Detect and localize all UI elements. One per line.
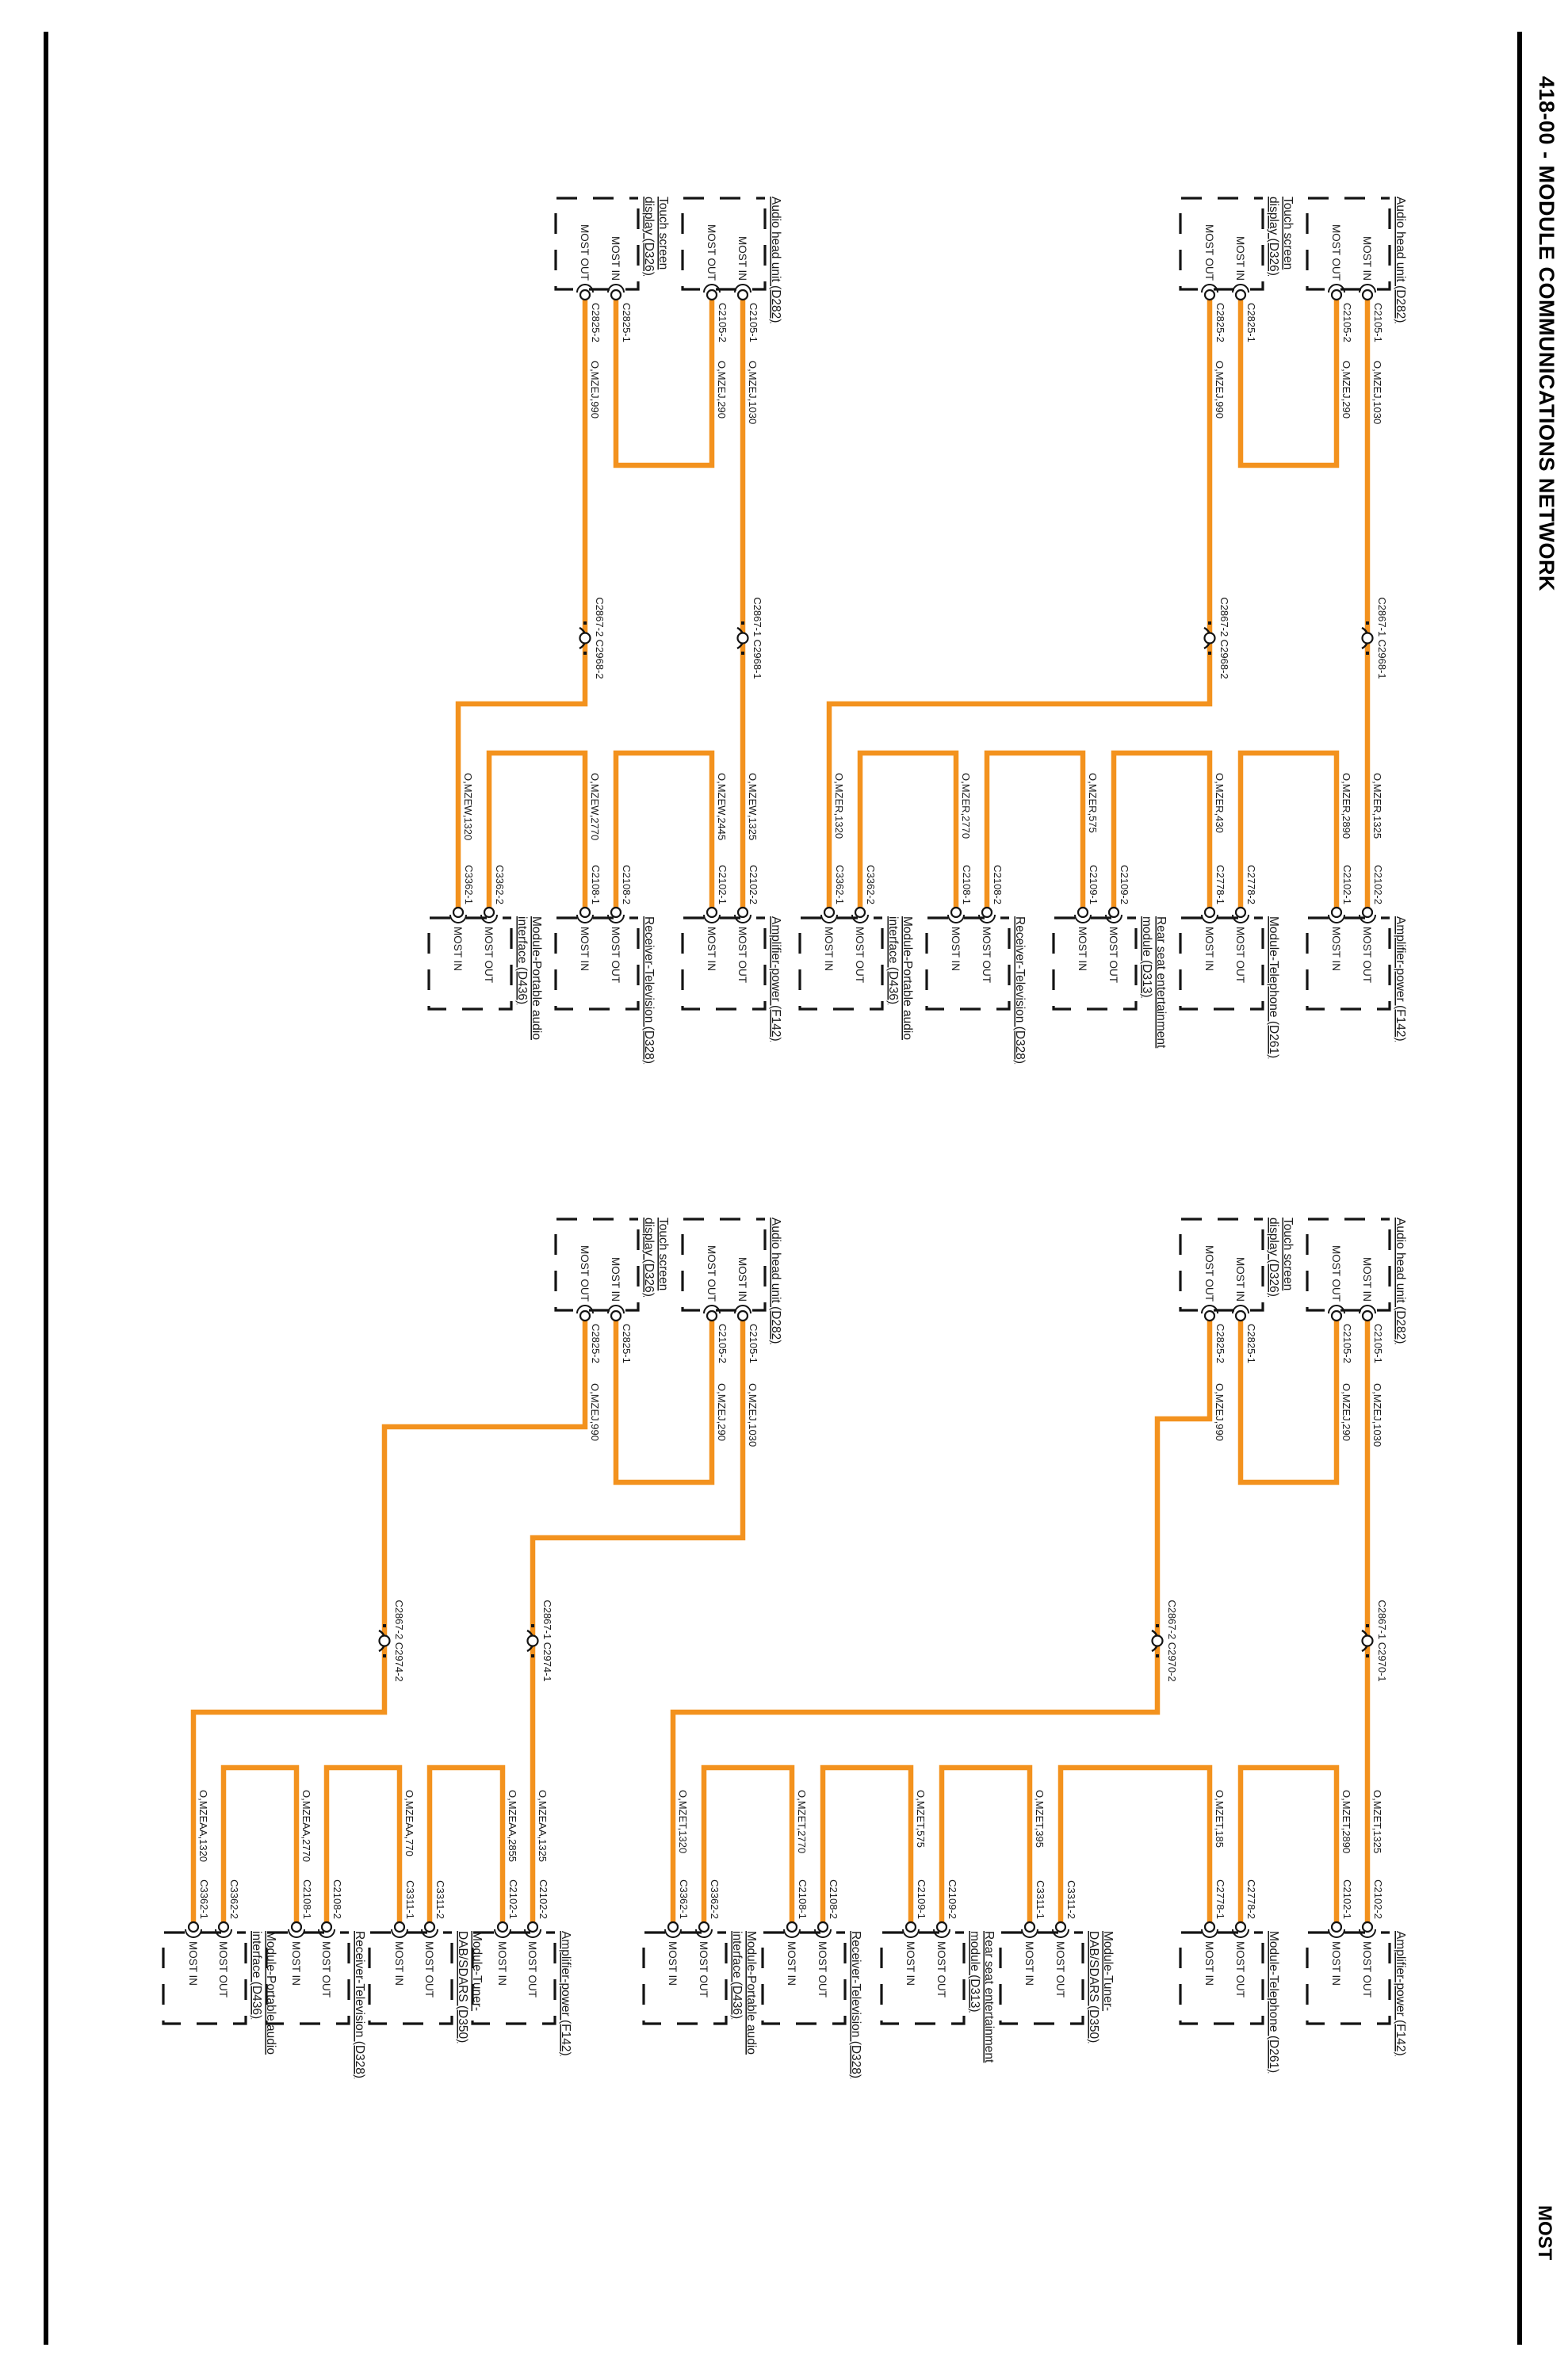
module-box bbox=[1180, 198, 1263, 289]
module-title: display (D326) bbox=[1267, 1218, 1280, 1297]
circuit-label: O,MZEJ,1030 bbox=[747, 1383, 759, 1447]
connector-pin-icon bbox=[824, 908, 834, 917]
connector-pin-icon bbox=[1078, 908, 1088, 917]
connector-label: C2108-2 bbox=[621, 865, 633, 904]
circuit-label: O,MZER,430 bbox=[1214, 773, 1226, 833]
pin-direction-label: MOST OUT bbox=[217, 1941, 229, 1998]
pin-direction-label: MOST OUT bbox=[483, 927, 495, 983]
module-title: Rear seat entertainment bbox=[982, 1931, 996, 2063]
connector-label: C2105-1 bbox=[748, 303, 759, 342]
module-box bbox=[683, 198, 765, 289]
connector-label: C2102-2 bbox=[1372, 1879, 1384, 1919]
connector-label: C3311-2 bbox=[434, 1880, 446, 1919]
pin-direction-label: MOST OUT bbox=[736, 927, 748, 983]
pin-direction-label: MOST IN bbox=[1234, 1257, 1246, 1302]
connector-pin-icon bbox=[1205, 1922, 1214, 1932]
module-touch-screen-display-d326: Touch screendisplay (D326)C2825-1MOST IN… bbox=[556, 1218, 670, 1363]
module-title: Receiver-Television (D328) bbox=[353, 1931, 366, 2078]
pin-direction-label: MOST OUT bbox=[1361, 927, 1373, 983]
pin-direction-label: MOST IN bbox=[823, 927, 835, 971]
pin-direction-label: MOST IN bbox=[1077, 927, 1088, 971]
connector-label: C2105-1 bbox=[748, 1324, 759, 1363]
connector-label: C2825-2 bbox=[590, 303, 602, 342]
connector-label: C2778-2 bbox=[1245, 865, 1257, 904]
connector-pin-icon bbox=[580, 290, 590, 300]
pin-direction-label: MOST OUT bbox=[1203, 224, 1215, 281]
connector-label: C2825-1 bbox=[1245, 1324, 1257, 1363]
module-title: interface (D436) bbox=[886, 916, 900, 1004]
connector-label: C3362-1 bbox=[198, 1879, 210, 1919]
pin-direction-label: MOST IN bbox=[1361, 1257, 1373, 1302]
module-title: Module-Portable audio bbox=[530, 916, 543, 1040]
connector-pin-icon bbox=[951, 908, 961, 917]
connector-pin-icon bbox=[699, 1922, 709, 1932]
pin-direction-label: MOST IN bbox=[786, 1941, 797, 1986]
module-box bbox=[1307, 918, 1390, 1009]
module-module-portable-audio-interface-d436: Module-Portable audiointerface (D436)C33… bbox=[644, 1879, 758, 2055]
module-title: Touch screen bbox=[656, 1218, 670, 1290]
connector-label: C2102-2 bbox=[748, 865, 759, 904]
pin-direction-label: MOST IN bbox=[290, 1941, 302, 1986]
connector-pin-icon bbox=[982, 908, 992, 917]
connector-pin-icon bbox=[219, 1922, 228, 1932]
module-touch-screen-display-d326: Touch screendisplay (D326)C2825-1MOST IN… bbox=[1180, 197, 1295, 342]
inline-connector-label: C2867-1 C2968-1 bbox=[751, 597, 763, 679]
inline-connector-label: C2867-1 C2974-1 bbox=[541, 1600, 553, 1681]
pin-direction-label: MOST OUT bbox=[854, 927, 866, 983]
connector-pin-icon bbox=[1363, 1922, 1372, 1932]
pin-direction-label: MOST IN bbox=[1203, 1941, 1215, 1986]
connector-pin-icon bbox=[1236, 908, 1245, 917]
circuit-label: O,MZER,1320 bbox=[833, 773, 845, 839]
connector-label: C2825-2 bbox=[590, 1324, 602, 1363]
pin-direction-label: MOST IN bbox=[1330, 927, 1342, 971]
network-4: O,MZEJ,1030O,MZEAA,1325O,MZEJ,290O,MZEJ,… bbox=[163, 1218, 782, 2078]
module-title: Module-Portable audio bbox=[264, 1931, 277, 2055]
connector-label: C3311-1 bbox=[404, 1880, 416, 1919]
pin-direction-label: MOST OUT bbox=[579, 224, 591, 281]
connector-label: C3362-1 bbox=[834, 865, 846, 904]
connector-label: C3362-2 bbox=[228, 1879, 240, 1919]
module-touch-screen-display-d326: Touch screendisplay (D326)C2825-1MOST IN… bbox=[1180, 1218, 1295, 1363]
connector-pin-icon bbox=[425, 1922, 434, 1932]
connector-label: C2105-2 bbox=[717, 1324, 729, 1363]
module-module-portable-audio-interface-d436: Module-Portable audiointerface (D436)C33… bbox=[163, 1879, 277, 2055]
pin-direction-label: MOST OUT bbox=[981, 927, 992, 983]
inline-connector-label: C2867-1 C2970-1 bbox=[1376, 1600, 1388, 1681]
module-box bbox=[556, 198, 638, 289]
pin-direction-label: MOST IN bbox=[667, 1941, 679, 1986]
circuit-label: O,MZEJ,990 bbox=[589, 361, 601, 419]
module-receiver-television-d328: Receiver-Television (D328)C2108-2MOST OU… bbox=[266, 1879, 366, 2078]
module-box bbox=[683, 918, 765, 1009]
module-box bbox=[556, 1219, 638, 1310]
connector-pin-icon bbox=[322, 1922, 331, 1932]
connector-pin-icon bbox=[787, 1922, 797, 1932]
module-title: interface (D436) bbox=[515, 916, 529, 1004]
connector-label: C2109-2 bbox=[947, 1879, 958, 1919]
connector-pin-icon bbox=[1363, 908, 1372, 917]
pin-direction-label: MOST OUT bbox=[1054, 1941, 1066, 1998]
most-ring-wire bbox=[193, 1316, 585, 1926]
module-title: Receiver-Television (D328) bbox=[1013, 916, 1027, 1064]
connector-label: C2102-2 bbox=[1372, 865, 1384, 904]
module-rear-seat-entertainment-module-d313: Rear seat entertainmentmodule (D313)C210… bbox=[1054, 865, 1168, 1049]
module-box bbox=[163, 1933, 246, 2024]
pin-direction-label: MOST IN bbox=[187, 1941, 199, 1986]
pin-direction-label: MOST OUT bbox=[526, 1941, 538, 1998]
connector-pin-icon bbox=[707, 290, 717, 300]
connector-pin-icon bbox=[611, 290, 621, 300]
wiring-diagram-canvas: O,MZEJ,1030O,MZER,1325O,MZEJ,290O,MZEJ,9… bbox=[0, 0, 1568, 2378]
pin-direction-label: MOST IN bbox=[1203, 927, 1215, 971]
circuit-label: O,MZEJ,290 bbox=[716, 361, 728, 419]
module-audio-head-unit-d282: Audio head unit (D282)C2105-1MOST INC210… bbox=[1307, 197, 1407, 342]
module-amplifier-power-f142: Amplifier-power (F142)C2102-2MOST OUTC21… bbox=[1307, 1879, 1407, 2056]
connector-pin-icon bbox=[1332, 1311, 1341, 1321]
connector-label: C3362-1 bbox=[463, 865, 475, 904]
pin-direction-label: MOST IN bbox=[496, 1941, 508, 1986]
connector-label: C2108-2 bbox=[331, 1879, 343, 1919]
connector-pin-icon bbox=[453, 908, 463, 917]
most-ring-wire bbox=[458, 295, 585, 912]
connector-label: C2825-1 bbox=[1245, 303, 1257, 342]
connector-pin-icon bbox=[818, 1922, 828, 1932]
connector-pin-icon bbox=[1205, 290, 1214, 300]
connector-pin-icon bbox=[1236, 1311, 1245, 1321]
pin-direction-label: MOST OUT bbox=[1107, 927, 1119, 983]
pin-direction-label: MOST OUT bbox=[1234, 1941, 1246, 1998]
pin-direction-label: MOST OUT bbox=[706, 224, 717, 281]
circuit-label: O,MZER,2890 bbox=[1340, 773, 1352, 839]
pin-direction-label: MOST OUT bbox=[1330, 1245, 1342, 1302]
connector-pin-icon bbox=[1363, 290, 1372, 300]
module-title: interface (D436) bbox=[250, 1931, 263, 2019]
connector-pin-icon bbox=[668, 1922, 678, 1932]
module-rear-seat-entertainment-module-d313: Rear seat entertainmentmodule (D313)C210… bbox=[882, 1879, 996, 2063]
circuit-label: O,MZEAA,2855 bbox=[507, 1790, 518, 1862]
connector-pin-icon bbox=[395, 1922, 404, 1932]
module-title: Amplifier-power (F142) bbox=[769, 916, 782, 1042]
pin-direction-label: MOST OUT bbox=[579, 1245, 591, 1302]
connector-pin-icon bbox=[707, 1311, 717, 1321]
module-title: Amplifier-power (F142) bbox=[1394, 1931, 1407, 2056]
module-module-telephone-d261: Module-Telephone (D261)C2778-2MOST OUTC2… bbox=[1180, 1879, 1280, 2073]
module-title: Module-Portable audio bbox=[744, 1931, 758, 2055]
module-box bbox=[1180, 1219, 1263, 1310]
circuit-label: O,MZEJ,990 bbox=[1214, 1383, 1226, 1441]
circuit-label: O,MZEJ,290 bbox=[1340, 1383, 1352, 1441]
circuit-label: O,MZEW,1320 bbox=[462, 773, 474, 840]
module-box bbox=[556, 918, 638, 1009]
module-box bbox=[1307, 1933, 1390, 2024]
pin-direction-label: MOST OUT bbox=[1203, 1245, 1215, 1302]
pin-direction-label: MOST OUT bbox=[1234, 927, 1246, 983]
connector-pin-icon bbox=[498, 1922, 507, 1932]
module-box bbox=[266, 1933, 349, 2024]
pin-direction-label: MOST OUT bbox=[1330, 224, 1342, 281]
module-box bbox=[763, 1933, 845, 2024]
circuit-label: O,MZEJ,990 bbox=[589, 1383, 601, 1441]
connector-label: C3311-2 bbox=[1065, 1880, 1077, 1919]
module-title: Module-Tuner- bbox=[1101, 1931, 1115, 2011]
circuit-label: O,MZEJ,1030 bbox=[1371, 361, 1383, 424]
module-module-telephone-d261: Module-Telephone (D261)C2778-2MOST OUTC2… bbox=[1180, 865, 1280, 1058]
module-title: Module-Telephone (D261) bbox=[1267, 916, 1280, 1058]
module-box bbox=[472, 1933, 555, 2024]
module-title: Audio head unit (D282) bbox=[1394, 197, 1407, 323]
circuit-label: O,MZEW,2770 bbox=[589, 773, 601, 840]
module-title: Receiver-Television (D328) bbox=[849, 1931, 862, 2078]
pin-direction-label: MOST OUT bbox=[935, 1941, 947, 1998]
connector-label: C2825-2 bbox=[1214, 303, 1226, 342]
connector-label: C2825-2 bbox=[1214, 1324, 1226, 1363]
connector-label: C2105-1 bbox=[1372, 303, 1384, 342]
circuit-label: O,MZER,2770 bbox=[960, 773, 972, 839]
connector-label: C2778-1 bbox=[1214, 1879, 1226, 1919]
connector-pin-icon bbox=[1025, 1922, 1034, 1932]
pin-direction-label: MOST IN bbox=[579, 927, 591, 971]
connector-pin-icon bbox=[580, 1311, 590, 1321]
circuit-label: O,MZET,2890 bbox=[1340, 1790, 1352, 1853]
connector-label: C2108-1 bbox=[797, 1879, 809, 1919]
module-title: Audio head unit (D282) bbox=[769, 1218, 782, 1344]
module-title: DAB/SDARS (D350) bbox=[1087, 1931, 1100, 2043]
circuit-label: O,MZEAA,770 bbox=[403, 1790, 415, 1856]
connector-pin-icon bbox=[1332, 1922, 1341, 1932]
module-box bbox=[1180, 1933, 1263, 2024]
connector-pin-icon bbox=[484, 908, 494, 917]
connector-label: C3311-1 bbox=[1034, 1880, 1046, 1919]
pin-direction-label: MOST IN bbox=[610, 236, 621, 281]
module-module-tuner-dab-sdars-d350: Module-Tuner-DAB/SDARS (D350)C3311-2MOST… bbox=[369, 1880, 484, 2043]
inline-connector-label: C2867-2 C2968-2 bbox=[594, 597, 606, 679]
pin-direction-label: MOST IN bbox=[452, 927, 464, 971]
module-audio-head-unit-d282: Audio head unit (D282)C2105-1MOST INC210… bbox=[683, 1218, 782, 1363]
connector-label: C2102-1 bbox=[1341, 1879, 1353, 1919]
circuit-label: O,MZER,1325 bbox=[1371, 773, 1383, 839]
module-amplifier-power-f142: Amplifier-power (F142)C2102-2MOST OUTC21… bbox=[1307, 865, 1407, 1042]
connector-pin-icon bbox=[738, 908, 748, 917]
connector-pin-icon bbox=[1236, 1922, 1245, 1932]
module-title: module (D313) bbox=[1140, 916, 1153, 998]
pin-direction-label: MOST IN bbox=[736, 1257, 748, 1302]
connector-pin-icon bbox=[580, 908, 590, 917]
module-title: Touch screen bbox=[656, 197, 670, 270]
rotated-diagram-sheet: 418-00 - MODULE COMMUNICATIONS NETWORK M… bbox=[0, 0, 1568, 2378]
connector-pin-icon bbox=[292, 1922, 301, 1932]
pin-direction-label: MOST IN bbox=[950, 927, 962, 971]
most-ring-wire bbox=[829, 295, 1210, 912]
connector-label: C2825-1 bbox=[621, 1324, 633, 1363]
connector-pin-icon bbox=[1332, 908, 1341, 917]
pin-direction-label: MOST IN bbox=[1361, 236, 1373, 281]
most-ring-wire bbox=[1061, 1768, 1210, 1926]
module-receiver-television-d328: Receiver-Television (D328)C2108-2MOST OU… bbox=[556, 865, 656, 1064]
module-box bbox=[1000, 1933, 1083, 2024]
circuit-label: O,MZEJ,990 bbox=[1214, 361, 1226, 419]
pin-direction-label: MOST IN bbox=[610, 1257, 621, 1302]
module-box bbox=[644, 1933, 726, 2024]
circuit-label: O,MZEAA,1325 bbox=[537, 1790, 549, 1862]
pin-direction-label: MOST OUT bbox=[1361, 1941, 1373, 1998]
connector-pin-icon bbox=[611, 908, 621, 917]
connector-label: C2102-1 bbox=[717, 865, 729, 904]
connector-label: C2105-2 bbox=[1341, 303, 1353, 342]
module-title: display (D326) bbox=[642, 1218, 656, 1297]
connector-pin-icon bbox=[738, 290, 748, 300]
inline-connector-label: C2867-2 C2974-2 bbox=[393, 1600, 405, 1681]
circuit-label: O,MZET,395 bbox=[1034, 1790, 1046, 1848]
module-title: display (D326) bbox=[642, 197, 656, 276]
module-audio-head-unit-d282: Audio head unit (D282)C2105-1MOST INC210… bbox=[683, 197, 782, 342]
module-title: Module-Portable audio bbox=[901, 916, 914, 1040]
circuit-label: O,MZEJ,290 bbox=[1340, 361, 1352, 419]
module-box bbox=[1307, 1219, 1390, 1310]
module-title: Amplifier-power (F142) bbox=[1394, 916, 1407, 1042]
module-title: Amplifier-power (F142) bbox=[559, 1931, 572, 2056]
module-title: Module-Telephone (D261) bbox=[1267, 1931, 1280, 2073]
circuit-label: O,MZEAA,2770 bbox=[300, 1790, 312, 1862]
circuit-label: O,MZET,1325 bbox=[1371, 1790, 1383, 1853]
module-box bbox=[369, 1933, 452, 2024]
manual-page: 418-00 - MODULE COMMUNICATIONS NETWORK M… bbox=[0, 0, 1568, 2378]
module-title: interface (D436) bbox=[730, 1931, 744, 2019]
connector-label: C2102-1 bbox=[1341, 865, 1353, 904]
module-receiver-television-d328: Receiver-Television (D328)C2108-2MOST OU… bbox=[763, 1879, 862, 2078]
module-title: DAB/SDARS (D350) bbox=[456, 1931, 469, 2043]
module-title: Module-Tuner- bbox=[470, 1931, 484, 2011]
pin-direction-label: MOST OUT bbox=[706, 1245, 717, 1302]
connector-label: C3362-2 bbox=[494, 865, 506, 904]
module-box bbox=[1307, 198, 1390, 289]
module-box bbox=[927, 918, 1009, 1009]
connector-pin-icon bbox=[189, 1922, 198, 1932]
module-box bbox=[1180, 918, 1263, 1009]
pin-direction-label: MOST IN bbox=[706, 927, 717, 971]
circuit-label: O,MZEJ,1030 bbox=[1371, 1383, 1383, 1447]
module-title: Touch screen bbox=[1281, 197, 1295, 270]
pin-direction-label: MOST OUT bbox=[698, 1941, 709, 1998]
pin-direction-label: MOST IN bbox=[393, 1941, 405, 1986]
circuit-label: O,MZEJ,290 bbox=[716, 1383, 728, 1441]
connector-label: C2109-2 bbox=[1119, 865, 1130, 904]
pin-direction-label: MOST IN bbox=[736, 236, 748, 281]
connector-pin-icon bbox=[1236, 290, 1245, 300]
connector-label: C2108-2 bbox=[828, 1879, 839, 1919]
connector-pin-icon bbox=[1205, 908, 1214, 917]
module-box bbox=[1054, 918, 1136, 1009]
module-touch-screen-display-d326: Touch screendisplay (D326)C2825-1MOST IN… bbox=[556, 197, 670, 342]
circuit-label: O,MZEAA,1320 bbox=[197, 1790, 209, 1862]
connector-label: C2778-2 bbox=[1245, 1879, 1257, 1919]
connector-pin-icon bbox=[611, 1311, 621, 1321]
pin-direction-label: MOST IN bbox=[1330, 1941, 1342, 1986]
module-title: Receiver-Television (D328) bbox=[642, 916, 656, 1064]
connector-pin-icon bbox=[528, 1922, 537, 1932]
circuit-label: O,MZET,185 bbox=[1214, 1790, 1226, 1848]
connector-label: C2108-1 bbox=[590, 865, 602, 904]
circuit-label: O,MZET,575 bbox=[915, 1790, 927, 1848]
connector-label: C2108-2 bbox=[992, 865, 1004, 904]
module-box bbox=[683, 1219, 765, 1310]
circuit-label: O,MZEW,1325 bbox=[747, 773, 759, 840]
circuit-label: O,MZEW,2445 bbox=[716, 773, 728, 840]
inline-connector-label: C2867-2 C2968-2 bbox=[1218, 597, 1230, 679]
connector-pin-icon bbox=[855, 908, 865, 917]
pin-direction-label: MOST OUT bbox=[817, 1941, 828, 1998]
connector-label: C3362-2 bbox=[865, 865, 877, 904]
module-audio-head-unit-d282: Audio head unit (D282)C2105-1MOST INC210… bbox=[1307, 1218, 1407, 1363]
inline-connector-label: C2867-1 C2968-1 bbox=[1376, 597, 1388, 679]
module-title: Audio head unit (D282) bbox=[769, 197, 782, 323]
pin-direction-label: MOST IN bbox=[1234, 236, 1246, 281]
connector-pin-icon bbox=[1056, 1922, 1065, 1932]
module-title: Rear seat entertainment bbox=[1154, 916, 1168, 1049]
connector-pin-icon bbox=[1205, 1311, 1214, 1321]
module-module-portable-audio-interface-d436: Module-Portable audiointerface (D436)C33… bbox=[800, 865, 914, 1040]
inline-connector-label: C2867-2 C2970-2 bbox=[1166, 1600, 1178, 1681]
module-box bbox=[429, 918, 511, 1009]
circuit-label: O,MZET,1320 bbox=[677, 1790, 689, 1853]
module-box bbox=[800, 918, 882, 1009]
module-module-tuner-dab-sdars-d350: Module-Tuner-DAB/SDARS (D350)C3311-2MOST… bbox=[1000, 1880, 1115, 2043]
connector-label: C2108-1 bbox=[961, 865, 973, 904]
connector-pin-icon bbox=[906, 1922, 916, 1932]
circuit-label: O,MZET,2770 bbox=[796, 1790, 808, 1853]
connector-label: C3362-2 bbox=[709, 1879, 721, 1919]
module-module-portable-audio-interface-d436: Module-Portable audiointerface (D436)C33… bbox=[429, 865, 543, 1040]
connector-pin-icon bbox=[738, 1311, 748, 1321]
connector-label: C2778-1 bbox=[1214, 865, 1226, 904]
module-box bbox=[882, 1933, 964, 2024]
connector-label: C2102-2 bbox=[537, 1879, 549, 1919]
module-amplifier-power-f142: Amplifier-power (F142)C2102-2MOST OUTC21… bbox=[683, 865, 782, 1042]
connector-label: C2105-2 bbox=[1341, 1324, 1353, 1363]
connector-pin-icon bbox=[937, 1922, 947, 1932]
connector-label: C2108-1 bbox=[301, 1879, 313, 1919]
pin-direction-label: MOST OUT bbox=[320, 1941, 332, 1998]
module-amplifier-power-f142: Amplifier-power (F142)C2102-2MOST OUTC21… bbox=[472, 1879, 572, 2056]
connector-label: C2105-2 bbox=[717, 303, 729, 342]
pin-direction-label: MOST OUT bbox=[423, 1941, 435, 1998]
connector-pin-icon bbox=[1332, 290, 1341, 300]
connector-label: C3362-1 bbox=[678, 1879, 690, 1919]
pin-direction-label: MOST IN bbox=[1023, 1941, 1035, 1986]
pin-direction-label: MOST IN bbox=[904, 1941, 916, 1986]
network-2: O,MZEJ,1030O,MZEW,1325O,MZEJ,290O,MZEJ,9… bbox=[429, 197, 782, 1064]
connector-label: C2109-1 bbox=[916, 1879, 927, 1919]
module-title: display (D326) bbox=[1267, 197, 1280, 276]
connector-pin-icon bbox=[1109, 908, 1119, 917]
module-title: Touch screen bbox=[1281, 1218, 1295, 1290]
circuit-label: O,MZEJ,1030 bbox=[747, 361, 759, 424]
connector-label: C2825-1 bbox=[621, 303, 633, 342]
connector-label: C2109-1 bbox=[1088, 865, 1100, 904]
module-title: Audio head unit (D282) bbox=[1394, 1218, 1407, 1344]
module-title: module (D313) bbox=[968, 1931, 981, 2013]
connector-label: C2105-1 bbox=[1372, 1324, 1384, 1363]
circuit-label: O,MZER,575 bbox=[1087, 773, 1099, 833]
module-receiver-television-d328: Receiver-Television (D328)C2108-2MOST OU… bbox=[927, 865, 1027, 1064]
connector-label: C2102-1 bbox=[507, 1879, 519, 1919]
network-1: O,MZEJ,1030O,MZER,1325O,MZEJ,290O,MZEJ,9… bbox=[800, 197, 1407, 1064]
pin-direction-label: MOST OUT bbox=[610, 927, 621, 983]
connector-pin-icon bbox=[1363, 1311, 1372, 1321]
connector-pin-icon bbox=[707, 908, 717, 917]
